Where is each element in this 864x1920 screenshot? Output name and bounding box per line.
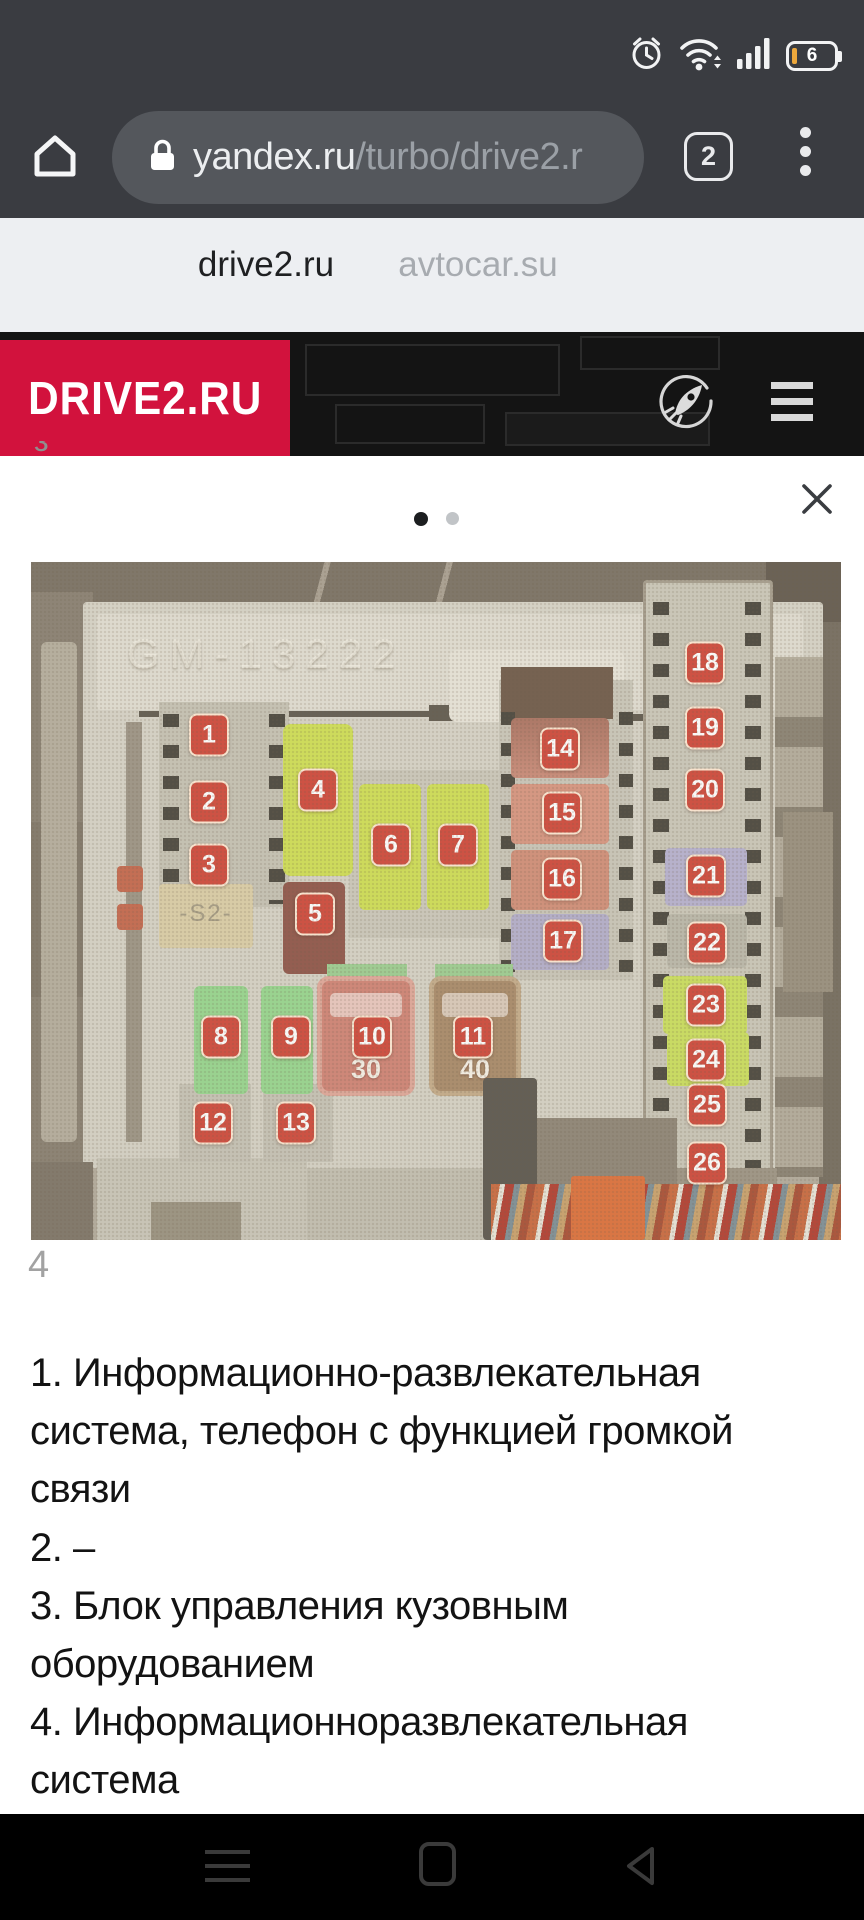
fuse-label-25: 25 xyxy=(687,1084,727,1127)
fuse-label-14: 14 xyxy=(540,728,580,771)
s2-marking: -S2- xyxy=(159,900,253,928)
fuse-label-10: 10 xyxy=(352,1016,392,1059)
address-bar[interactable]: yandex.ru/turbo/drive2.r xyxy=(112,111,644,204)
fusebox-photo: GM-13222 -S2- xyxy=(31,562,841,1240)
photo-cables xyxy=(281,562,541,606)
header-decor xyxy=(335,404,485,444)
fuse-label-19: 19 xyxy=(685,707,725,750)
pin-row xyxy=(745,602,761,1188)
clipped-text-glyph: з xyxy=(34,441,64,456)
fuse-label-26: 26 xyxy=(687,1142,727,1185)
home-nav-icon[interactable] xyxy=(419,1842,456,1886)
description-line: 2. – xyxy=(30,1519,733,1577)
fuse-label-20: 20 xyxy=(685,769,725,812)
header-decor xyxy=(305,344,560,396)
burger-bar xyxy=(771,398,813,405)
fuse-label-15: 15 xyxy=(542,792,582,835)
burger-bar xyxy=(771,414,813,421)
alarm-clock-icon xyxy=(628,34,665,77)
url-text: yandex.ru/turbo/drive2.r xyxy=(193,136,582,179)
battery-nub xyxy=(837,51,842,62)
phone-screen: 6 yandex.ru/turbo/drive2.r 2 xyxy=(0,0,864,1920)
browser-chrome: 6 yandex.ru/turbo/drive2.r 2 xyxy=(0,0,864,218)
description-line: 1. Информационно-развлекательная xyxy=(30,1344,733,1402)
menu-dot xyxy=(800,127,811,138)
fuse-label-6: 6 xyxy=(371,824,411,867)
browser-home-button[interactable] xyxy=(28,128,82,187)
embossed-part-number: GM-13222 xyxy=(127,630,405,678)
battery-level: 6 xyxy=(789,45,835,67)
url-domain: yandex.ru xyxy=(193,136,355,178)
drive2-logo[interactable]: DRIVE2.RU xyxy=(0,340,290,456)
close-icon[interactable] xyxy=(794,476,840,527)
description-line: оборудованием xyxy=(30,1635,733,1693)
right-step-block xyxy=(783,812,833,992)
fuse-label-1: 1 xyxy=(189,714,229,757)
pager-dot-inactive xyxy=(446,512,459,525)
site-header: DRIVE2.RU xyxy=(0,332,864,456)
fuse-label-18: 18 xyxy=(685,642,725,685)
orange-tab xyxy=(117,904,143,930)
header-decor xyxy=(580,336,720,370)
status-bar: 6 xyxy=(628,34,838,77)
tab-count: 2 xyxy=(701,141,716,172)
mid-dark-block xyxy=(501,667,613,719)
menu-dot xyxy=(800,146,811,157)
fuse-label-21: 21 xyxy=(686,855,726,898)
wifi-icon xyxy=(678,34,724,77)
foot-notch xyxy=(151,1202,241,1240)
signal-strength-icon xyxy=(737,36,773,75)
description-line: система xyxy=(30,1751,733,1809)
description-line: 4. Информационноразвлекательная xyxy=(30,1693,733,1751)
tan-fuse-s2: -S2- xyxy=(159,884,253,948)
fuse-label-23: 23 xyxy=(686,984,726,1027)
page-tab-drive2[interactable]: drive2.ru xyxy=(198,245,334,285)
back-nav-icon[interactable] xyxy=(620,1844,664,1893)
fuse-window xyxy=(442,993,508,1017)
orange-connector xyxy=(571,1176,645,1240)
fuse-label-24: 24 xyxy=(686,1039,726,1082)
pin-row xyxy=(163,714,179,904)
page-tab-avtocar[interactable]: avtocar.su xyxy=(398,245,558,285)
fuse-label-7: 7 xyxy=(438,824,478,867)
fuse-label-16: 16 xyxy=(542,858,582,901)
rocket-icon[interactable] xyxy=(655,368,717,435)
fuse-label-3: 3 xyxy=(189,844,229,887)
orange-tab xyxy=(117,866,143,892)
fuse-label-2: 2 xyxy=(189,781,229,824)
menu-bar xyxy=(205,1878,250,1882)
fuse-label-8: 8 xyxy=(201,1016,241,1059)
fuse-10-rating: 30 xyxy=(322,1054,410,1085)
description-line: связи xyxy=(30,1460,733,1518)
bottom-mid-plate xyxy=(307,1168,487,1240)
menu-bar xyxy=(205,1864,250,1868)
fuse-label-17: 17 xyxy=(543,920,583,963)
pin-row xyxy=(619,712,633,972)
bottom-left-dark xyxy=(31,1162,93,1240)
https-lock-icon xyxy=(148,137,176,178)
housing-divider xyxy=(126,722,142,1142)
fuse-label-13: 13 xyxy=(276,1102,316,1145)
fuse-label-22: 22 xyxy=(687,922,727,965)
description-line: 3. Блок управления кузовным xyxy=(30,1577,733,1635)
fuse-label-12: 12 xyxy=(193,1102,233,1145)
fuse-description-list: 1. Информационно-развлекательнаясистема,… xyxy=(30,1344,733,1810)
fuse-label-11: 11 xyxy=(453,1016,493,1059)
fuse-label-5: 5 xyxy=(295,893,335,936)
pager-dot-active xyxy=(414,512,428,526)
fuse-label-9: 9 xyxy=(271,1016,311,1059)
photo-caption: 4 xyxy=(28,1244,49,1287)
turbo-page-switcher: drive2.ru avtocar.su xyxy=(0,218,864,332)
browser-menu-button[interactable] xyxy=(800,127,811,176)
description-line: система, телефон с функцией громкой xyxy=(30,1402,733,1460)
fuse-label-4: 4 xyxy=(298,769,338,812)
drive2-logo-text: DRIVE2.RU xyxy=(28,371,262,425)
wire-bundle xyxy=(491,1184,841,1240)
tab-count-button[interactable]: 2 xyxy=(684,132,733,181)
housing-left-bracket xyxy=(41,642,77,1142)
fuse-window xyxy=(330,993,402,1017)
battery-icon: 6 xyxy=(786,41,838,71)
url-path: /turbo/drive2.r xyxy=(355,136,582,178)
burger-bar xyxy=(771,382,813,389)
menu-bar xyxy=(205,1850,250,1854)
recents-menu-icon[interactable] xyxy=(205,1850,250,1882)
menu-dot xyxy=(800,165,811,176)
site-menu-icon[interactable] xyxy=(771,382,813,421)
